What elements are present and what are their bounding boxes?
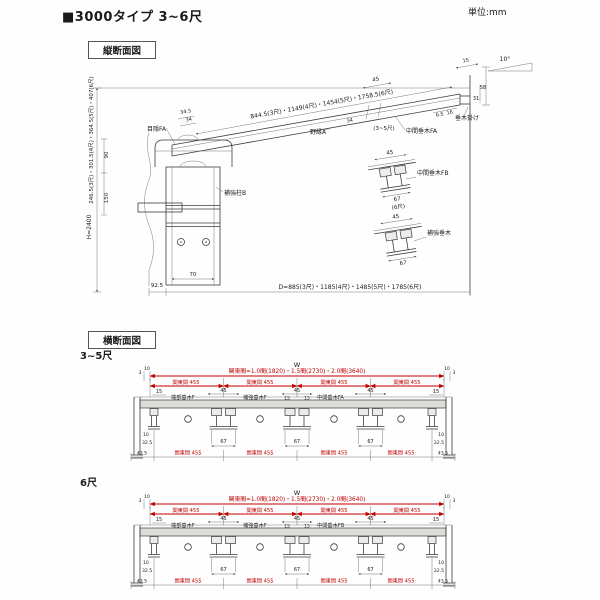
dim-43-5: 43.5 (438, 451, 448, 457)
span-455: 関東間 455 (387, 577, 414, 585)
span-455: 関東間 455 (387, 449, 414, 457)
dim-67: 67 (393, 196, 401, 203)
dim-10: 10 (444, 366, 450, 372)
slope-angle-label: 10° (500, 56, 511, 63)
frame-and-panel (131, 525, 455, 586)
bolt-icon (257, 416, 264, 423)
dim-3: 3 (139, 498, 142, 504)
mekakushi-label: 目隠FA (147, 125, 167, 133)
span-455: 関東間 455 (174, 577, 201, 585)
dim-45: 45 (294, 388, 300, 394)
tip-detail: 15 58 31 6.5 16 垂木掛け (433, 58, 490, 122)
span-455: 関東間 455 (320, 506, 347, 514)
rafters (148, 409, 438, 430)
dim-10: 10 (438, 432, 444, 438)
span-455: 関東間 455 (320, 378, 347, 386)
dim-15: 15 (433, 517, 439, 523)
dim-90: 90 (104, 151, 110, 158)
span-455: 関東間 455 (246, 506, 273, 514)
front-beam (155, 135, 232, 167)
cross-section-6-drawing: W 関東間=1.0間(1820)・1.5間(2730)・2.0間(3640) 3… (0, 488, 600, 600)
dim-3: 3 (453, 498, 456, 504)
dim-67: 67 (367, 439, 373, 445)
rafters (148, 537, 438, 558)
dim-67: 67 (220, 567, 226, 573)
dim-15: 15 (462, 58, 469, 65)
cross-section-3-5-drawing: W 関東間=1.0間(1820)・1.5間(2730)・2.0間(3640) 3… (0, 360, 600, 474)
dim-15: 15 (156, 517, 162, 523)
height-dims-text: 246.5(3尺)・301.5(4尺)・364.5(5尺)・407(6尺) (88, 76, 95, 203)
left-height-dimension: 246.5(3尺)・301.5(4尺)・364.5(5尺)・407(6尺) H=… (86, 76, 110, 292)
bolt-icon (398, 416, 405, 423)
bottom-dimensions: 70 92.5 D=885(3尺)・1185(4尺)・1485(5尺)・1785… (149, 272, 470, 296)
dim-45: 45 (392, 214, 400, 221)
eave-small-dims: 34.5 34 (178, 108, 196, 126)
dim-67: 67 (367, 567, 373, 573)
dim-32-5: 32.5 (434, 568, 444, 574)
post-leader (216, 187, 223, 192)
span-455: 関東間 455 (172, 378, 199, 386)
unit-label: 単位:mm (468, 5, 507, 18)
detail-chukan-fb: 45 67 (6尺) (366, 147, 423, 215)
size-6shaku: (6尺) (391, 203, 405, 212)
size-label-6: 6尺 (80, 474, 97, 489)
dim-32-5: 32.5 (142, 440, 152, 446)
dim-43-5: 43.5 (137, 451, 147, 457)
span-455: 関東間 455 (393, 506, 420, 514)
dim-70: 70 (190, 272, 197, 278)
span-455: 関東間 455 (246, 577, 273, 585)
chukan-fa-label: 中間垂木FA (406, 127, 438, 135)
span-455: 関東間 455 (320, 577, 347, 585)
dim-34-5: 34.5 (180, 108, 192, 116)
span-455: 関東間 455 (320, 449, 347, 457)
bolt-icon (331, 544, 338, 551)
w-label: W (294, 361, 301, 369)
dim-43-5: 43.5 (137, 579, 147, 585)
dim-3: 3 (453, 370, 456, 376)
dim-67-group: 67 67 67 (212, 558, 383, 574)
bolt-icon (257, 544, 264, 551)
post-label: 補強柱B (224, 189, 246, 197)
dim-45: 45 (367, 388, 373, 394)
dim-34: 34 (185, 117, 192, 124)
dim-3: 3 (139, 370, 142, 376)
mekakushi-leader (166, 128, 175, 144)
dim-45: 45 (220, 388, 226, 394)
page-title: ■3000タイプ 3~6尺 (62, 6, 202, 25)
dim-10: 10 (143, 560, 149, 566)
dim-32-5: 32.5 (142, 568, 152, 574)
dim-34-mid: 34 (346, 118, 353, 125)
dim-10: 10 (144, 366, 150, 372)
dim-45: 45 (372, 76, 380, 83)
span-455: 関東間 455 (246, 378, 273, 386)
span-455: 関東間 455 (393, 378, 420, 386)
dim-67: 67 (220, 439, 226, 445)
depth-dims-text: D=885(3尺)・1185(4尺)・1485(5尺)・1785(6尺) (279, 284, 422, 291)
slope-dims-text: 844.5(3尺)・1149(4尺)・1454(5尺)・1758.5(6尺) (250, 89, 394, 121)
nobuchi-label: 野縁A (310, 128, 327, 136)
dim-15: 15 (156, 389, 162, 395)
bottom-span-dims: 43.5 関東間 455 関東間 455 関東間 455 関東間 455 43.… (131, 430, 455, 461)
dim-45: 45 (367, 516, 373, 522)
dim-67: 67 (294, 439, 300, 445)
dim-43-5: 43.5 (438, 579, 448, 585)
drawing-page: ■3000タイプ 3~6尺 単位:mm 縦断面図 (0, 0, 600, 600)
dim-58: 58 (480, 85, 486, 91)
hokyo-taruki-leader (414, 237, 426, 241)
bottom-span-dims: 43.5 関東間 455 関東間 455 関東間 455 関東間 455 43.… (131, 558, 455, 589)
dim-6-5: 6.5 (435, 111, 444, 118)
bolt-icon (185, 544, 192, 551)
dim-45: 45 (220, 516, 226, 522)
dim-10: 10 (438, 560, 444, 566)
dim-92-5: 92.5 (151, 283, 164, 289)
frame-and-panel (131, 397, 455, 458)
bolt-icon (331, 416, 338, 423)
dim-45: 45 (294, 516, 300, 522)
dim-10: 10 (444, 494, 450, 500)
span-455: 関東間 455 (174, 449, 201, 457)
width-dims-text: 関東間=1.0間(1820)・1.5間(2730)・2.0間(3640) (229, 367, 366, 375)
dim-10: 10 (144, 494, 150, 500)
dim-15: 15 (433, 389, 439, 395)
break-line (145, 133, 154, 286)
bolt-icon (185, 416, 192, 423)
slope-length-dimension: 844.5(3尺)・1149(4尺)・1454(5尺)・1758.5(6尺) (196, 87, 452, 134)
span-455: 関東間 455 (172, 506, 199, 514)
dim-32-5: 32.5 (434, 440, 444, 446)
rafter-dims: 15 45 45 15 15 45 15 (152, 516, 443, 530)
bolt-icon (398, 544, 405, 551)
width-dims-text: 関東間=1.0間(1820)・1.5間(2730)・2.0間(3640) (229, 495, 366, 503)
span-455: 関東間 455 (246, 449, 273, 457)
dim-31: 31 (473, 96, 479, 102)
dim-150: 150 (104, 192, 110, 203)
hokyo-taruki-label: 補強垂木 (427, 229, 451, 237)
dim-45: 45 (386, 150, 394, 157)
tarukikake-label: 垂木掛け (455, 114, 479, 122)
vertical-section-drawing: 10° 246.5(3尺)・301.5(4尺)・364.5(5尺)・407(6尺… (0, 55, 600, 320)
dim-16: 16 (446, 110, 453, 117)
chukan-fb-leader (406, 177, 416, 179)
dim-67: 67 (294, 567, 300, 573)
chukan-fb-label: 中間垂木FB (417, 169, 449, 177)
h2400-text: H=2400 (86, 214, 93, 239)
detail-hokyo-taruki: 45 67 (372, 211, 428, 271)
dim-10: 10 (143, 432, 149, 438)
dim-67-group: 67 67 67 (212, 430, 383, 446)
range-label: (3~5尺) (373, 125, 394, 132)
dim-67: 67 (399, 260, 407, 267)
rafter-dims: 15 45 45 15 15 45 15 (152, 388, 443, 402)
w-label: W (294, 489, 301, 497)
slope-angle-symbol: 10° (488, 56, 532, 71)
